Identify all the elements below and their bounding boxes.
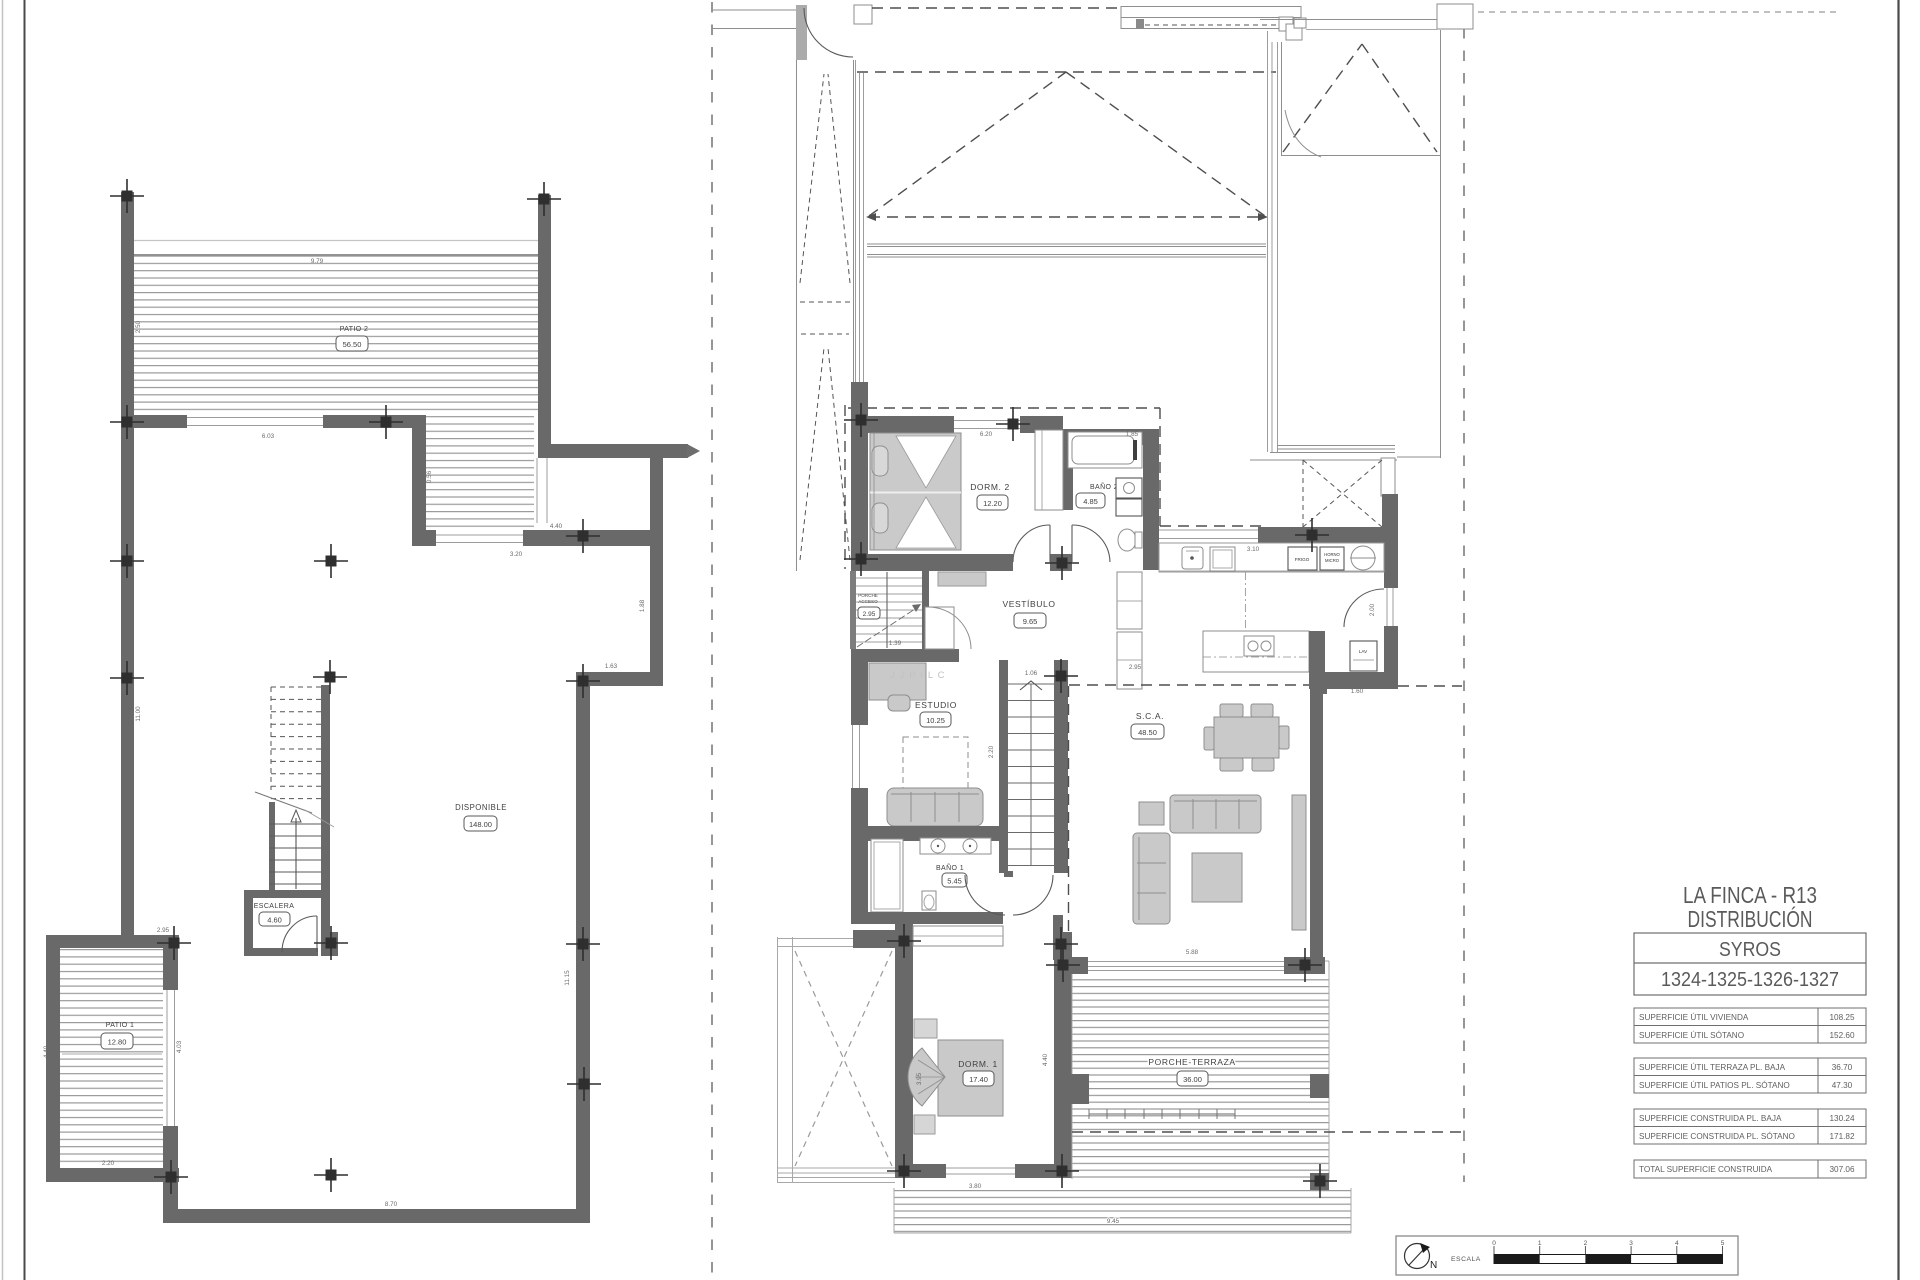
svg-text:6.03: 6.03 — [262, 433, 275, 440]
svg-text:BAÑO 2: BAÑO 2 — [1090, 482, 1118, 491]
svg-text:1.06: 1.06 — [1025, 670, 1038, 677]
svg-text:SUPERFICIE CONSTRUIDA PL. BAJA: SUPERFICIE CONSTRUIDA PL. BAJA — [1639, 1114, 1782, 1123]
svg-text:2.95: 2.95 — [1129, 664, 1142, 671]
svg-text:4.40: 4.40 — [43, 1045, 50, 1058]
svg-text:1324-1325-1326-1327: 1324-1325-1326-1327 — [1661, 969, 1839, 991]
svg-text:48.50: 48.50 — [1138, 728, 1157, 737]
svg-text:HORNO: HORNO — [1324, 552, 1340, 557]
svg-text:4.40: 4.40 — [550, 523, 563, 530]
svg-text:5: 5 — [1721, 1240, 1725, 1247]
svg-text:2.20: 2.20 — [102, 1160, 115, 1167]
svg-text:0.56: 0.56 — [426, 470, 433, 483]
svg-text:LA FINCA - R13: LA FINCA - R13 — [1683, 882, 1817, 908]
svg-text:0: 0 — [1492, 1240, 1496, 1247]
svg-text:4.60: 4.60 — [267, 916, 282, 925]
svg-text:SUPERFICIE ÚTIL TERRAZA PL. BA: SUPERFICIE ÚTIL TERRAZA PL. BAJA — [1639, 1062, 1786, 1072]
svg-text:DISTRIBUCIÓN: DISTRIBUCIÓN — [1688, 906, 1813, 932]
svg-text:307.06: 307.06 — [1829, 1165, 1854, 1174]
svg-text:2: 2 — [1584, 1240, 1588, 1247]
svg-text:2.20: 2.20 — [988, 745, 995, 758]
svg-text:9.79: 9.79 — [311, 258, 324, 265]
svg-text:ESTUDIO: ESTUDIO — [915, 700, 957, 710]
svg-text:17.40: 17.40 — [969, 1075, 988, 1084]
svg-text:ACCESO: ACCESO — [858, 599, 878, 604]
svg-text:SUPERFICIE ÚTIL SÓTANO: SUPERFICIE ÚTIL SÓTANO — [1639, 1030, 1744, 1040]
svg-text:TOTAL SUPERFICIE CONSTRUIDA: TOTAL SUPERFICIE CONSTRUIDA — [1639, 1165, 1773, 1174]
svg-text:2.95: 2.95 — [157, 927, 170, 934]
svg-text:N: N — [1430, 1260, 1437, 1271]
svg-text:10.25: 10.25 — [926, 716, 945, 725]
svg-text:SUPERFICIE ÚTIL PATIOS PL. SÓT: SUPERFICIE ÚTIL PATIOS PL. SÓTANO — [1639, 1080, 1790, 1090]
svg-text:3.10: 3.10 — [1247, 546, 1260, 553]
svg-text:11.00: 11.00 — [135, 706, 142, 722]
svg-text:1.63: 1.63 — [605, 663, 618, 670]
svg-text:5.45: 5.45 — [947, 877, 962, 886]
svg-text:8.70: 8.70 — [385, 1201, 398, 1208]
svg-text:36.70: 36.70 — [1832, 1063, 1853, 1072]
svg-text:148.00: 148.00 — [469, 820, 492, 829]
svg-text:4.40: 4.40 — [1042, 1053, 1049, 1066]
svg-text:PORCHE: PORCHE — [858, 593, 878, 598]
svg-text:3.20: 3.20 — [510, 551, 523, 558]
svg-text:11.15: 11.15 — [564, 970, 571, 986]
svg-text:2.15: 2.15 — [944, 831, 957, 838]
svg-text:FRIGO: FRIGO — [1295, 557, 1310, 562]
svg-text:152.60: 152.60 — [1829, 1031, 1854, 1040]
svg-text:ESCALA: ESCALA — [1451, 1256, 1481, 1263]
svg-text:4.85: 4.85 — [1083, 497, 1098, 506]
svg-text:2.50: 2.50 — [135, 320, 142, 333]
svg-text:12.20: 12.20 — [983, 499, 1002, 508]
svg-text:1.60: 1.60 — [1351, 688, 1364, 695]
svg-text:6.20: 6.20 — [980, 431, 993, 438]
svg-text:9.65: 9.65 — [1023, 617, 1038, 626]
svg-text:SYROS: SYROS — [1719, 939, 1781, 961]
svg-text:PORCHE-TERRAZA: PORCHE-TERRAZA — [1148, 1057, 1235, 1067]
svg-text:DORM. 1: DORM. 1 — [958, 1059, 998, 1069]
svg-text:5.88: 5.88 — [1186, 949, 1199, 956]
svg-text:47.30: 47.30 — [1832, 1081, 1853, 1090]
svg-text:9.45: 9.45 — [1107, 1218, 1120, 1225]
svg-text:SUPERFICIE ÚTIL VIVIENDA: SUPERFICIE ÚTIL VIVIENDA — [1639, 1012, 1749, 1022]
svg-text:J J P I L C: J J P I L C — [890, 670, 947, 681]
svg-text:1.39: 1.39 — [889, 640, 902, 647]
svg-text:S.C.A.: S.C.A. — [1136, 711, 1164, 721]
svg-text:3.95: 3.95 — [916, 1072, 923, 1085]
svg-text:4: 4 — [1675, 1240, 1679, 1247]
svg-text:3: 3 — [1629, 1240, 1633, 1247]
svg-text:VESTÍBULO: VESTÍBULO — [1002, 599, 1055, 609]
svg-text:171.82: 171.82 — [1829, 1132, 1854, 1141]
svg-text:PATIO 2: PATIO 2 — [340, 326, 369, 333]
svg-text:LAV: LAV — [1359, 649, 1368, 654]
svg-text:BAÑO 1: BAÑO 1 — [936, 863, 964, 872]
svg-text:36.00: 36.00 — [1183, 1075, 1202, 1084]
svg-text:ESCALERA: ESCALERA — [254, 903, 295, 910]
svg-text:1.88: 1.88 — [639, 599, 646, 612]
svg-text:1: 1 — [1538, 1240, 1542, 1247]
svg-text:12.80: 12.80 — [108, 1038, 127, 1047]
svg-text:108.25: 108.25 — [1829, 1013, 1854, 1022]
svg-text:DISPONIBLE: DISPONIBLE — [455, 803, 507, 812]
svg-text:56.50: 56.50 — [343, 340, 362, 349]
svg-text:2.95: 2.95 — [863, 611, 876, 618]
svg-text:SUPERFICIE CONSTRUIDA PL. SÓTA: SUPERFICIE CONSTRUIDA PL. SÓTANO — [1639, 1131, 1795, 1141]
svg-text:130.24: 130.24 — [1829, 1114, 1854, 1123]
svg-text:PATIO 1: PATIO 1 — [106, 1022, 135, 1029]
svg-text:4.03: 4.03 — [176, 1040, 183, 1053]
svg-text:MICRO: MICRO — [1325, 558, 1340, 563]
svg-text:1.85: 1.85 — [1126, 431, 1139, 438]
svg-text:2.00: 2.00 — [1369, 603, 1376, 616]
svg-text:DORM. 2: DORM. 2 — [970, 482, 1010, 492]
